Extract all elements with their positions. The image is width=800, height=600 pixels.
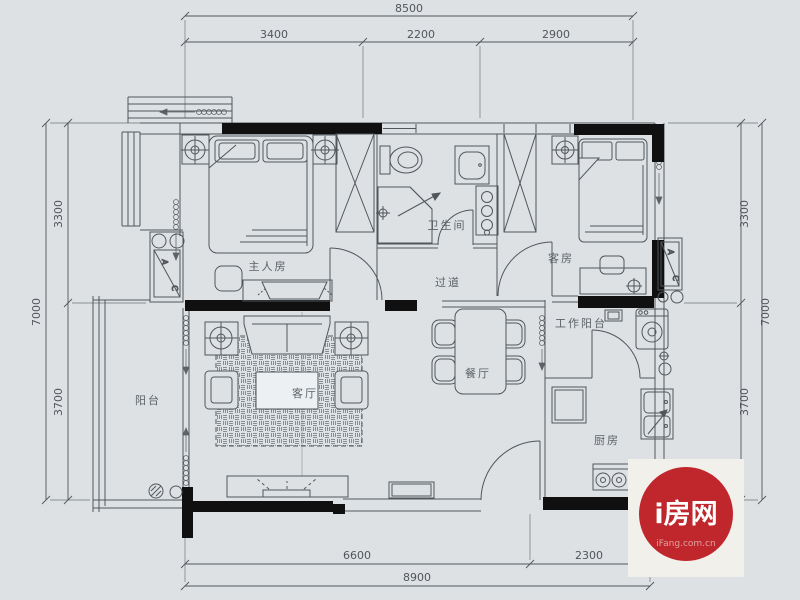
dim-top-seg2: 2200 [407,28,435,41]
dim-top-total: 8500 [395,2,423,15]
master-bedroom-furniture [181,134,374,301]
floor-plan-drawing: 8500 3400 2200 2900 7000 3300 3700 3300 … [0,0,800,600]
dim-left-total: 7000 [30,298,43,326]
ac-label-c2: C [671,275,680,281]
guest-room-furniture [504,134,647,294]
dim-right-seg1: 3300 [738,200,751,228]
dim-left-seg1: 3300 [52,200,65,228]
dim-right-seg2: 3700 [738,388,751,416]
room-label-dining-room: 餐厅 [465,366,491,380]
room-label-balcony: 阳台 [135,393,161,407]
room-label-guest-room: 客房 [548,251,574,265]
dim-top-seg3: 2900 [542,28,570,41]
balcony-fixtures [149,484,182,498]
dim-left-seg2: 3700 [52,388,65,416]
dim-bottom-seg2: 2300 [575,549,603,562]
ifang-logo: i房网 iFang.com.cn [628,459,744,577]
ac-unit-left: A C [152,234,184,297]
room-label-living-room: 客厅 [292,386,318,400]
dining-room-furniture [432,309,525,394]
ac-label-c: C [170,285,179,291]
room-label-work-balcony: 工作阳台 [555,316,607,330]
room-label-bathroom: 卫生间 [428,218,467,232]
dim-top-seg1: 3400 [260,28,288,41]
room-label-corridor: 过道 [435,275,461,289]
room-label-master-bedroom: 主人房 [249,260,288,273]
dim-bottom-total: 8900 [403,571,431,584]
living-room-furniture [205,312,368,497]
ac-label-a: A [160,259,169,265]
dim-bottom-seg1: 6600 [343,549,371,562]
floor-plan-page: 8500 3400 2200 2900 7000 3300 3700 3300 … [0,0,800,600]
dim-right-total: 7000 [759,298,772,326]
ac-label-a2: A [666,249,675,255]
room-label-kitchen: 厨房 [594,434,620,447]
corridor-cabinet [476,186,498,235]
entry-cabinet [389,482,434,498]
ifang-logo-title: i房网 [654,499,717,530]
ifang-logo-subtitle: iFang.com.cn [656,539,715,549]
